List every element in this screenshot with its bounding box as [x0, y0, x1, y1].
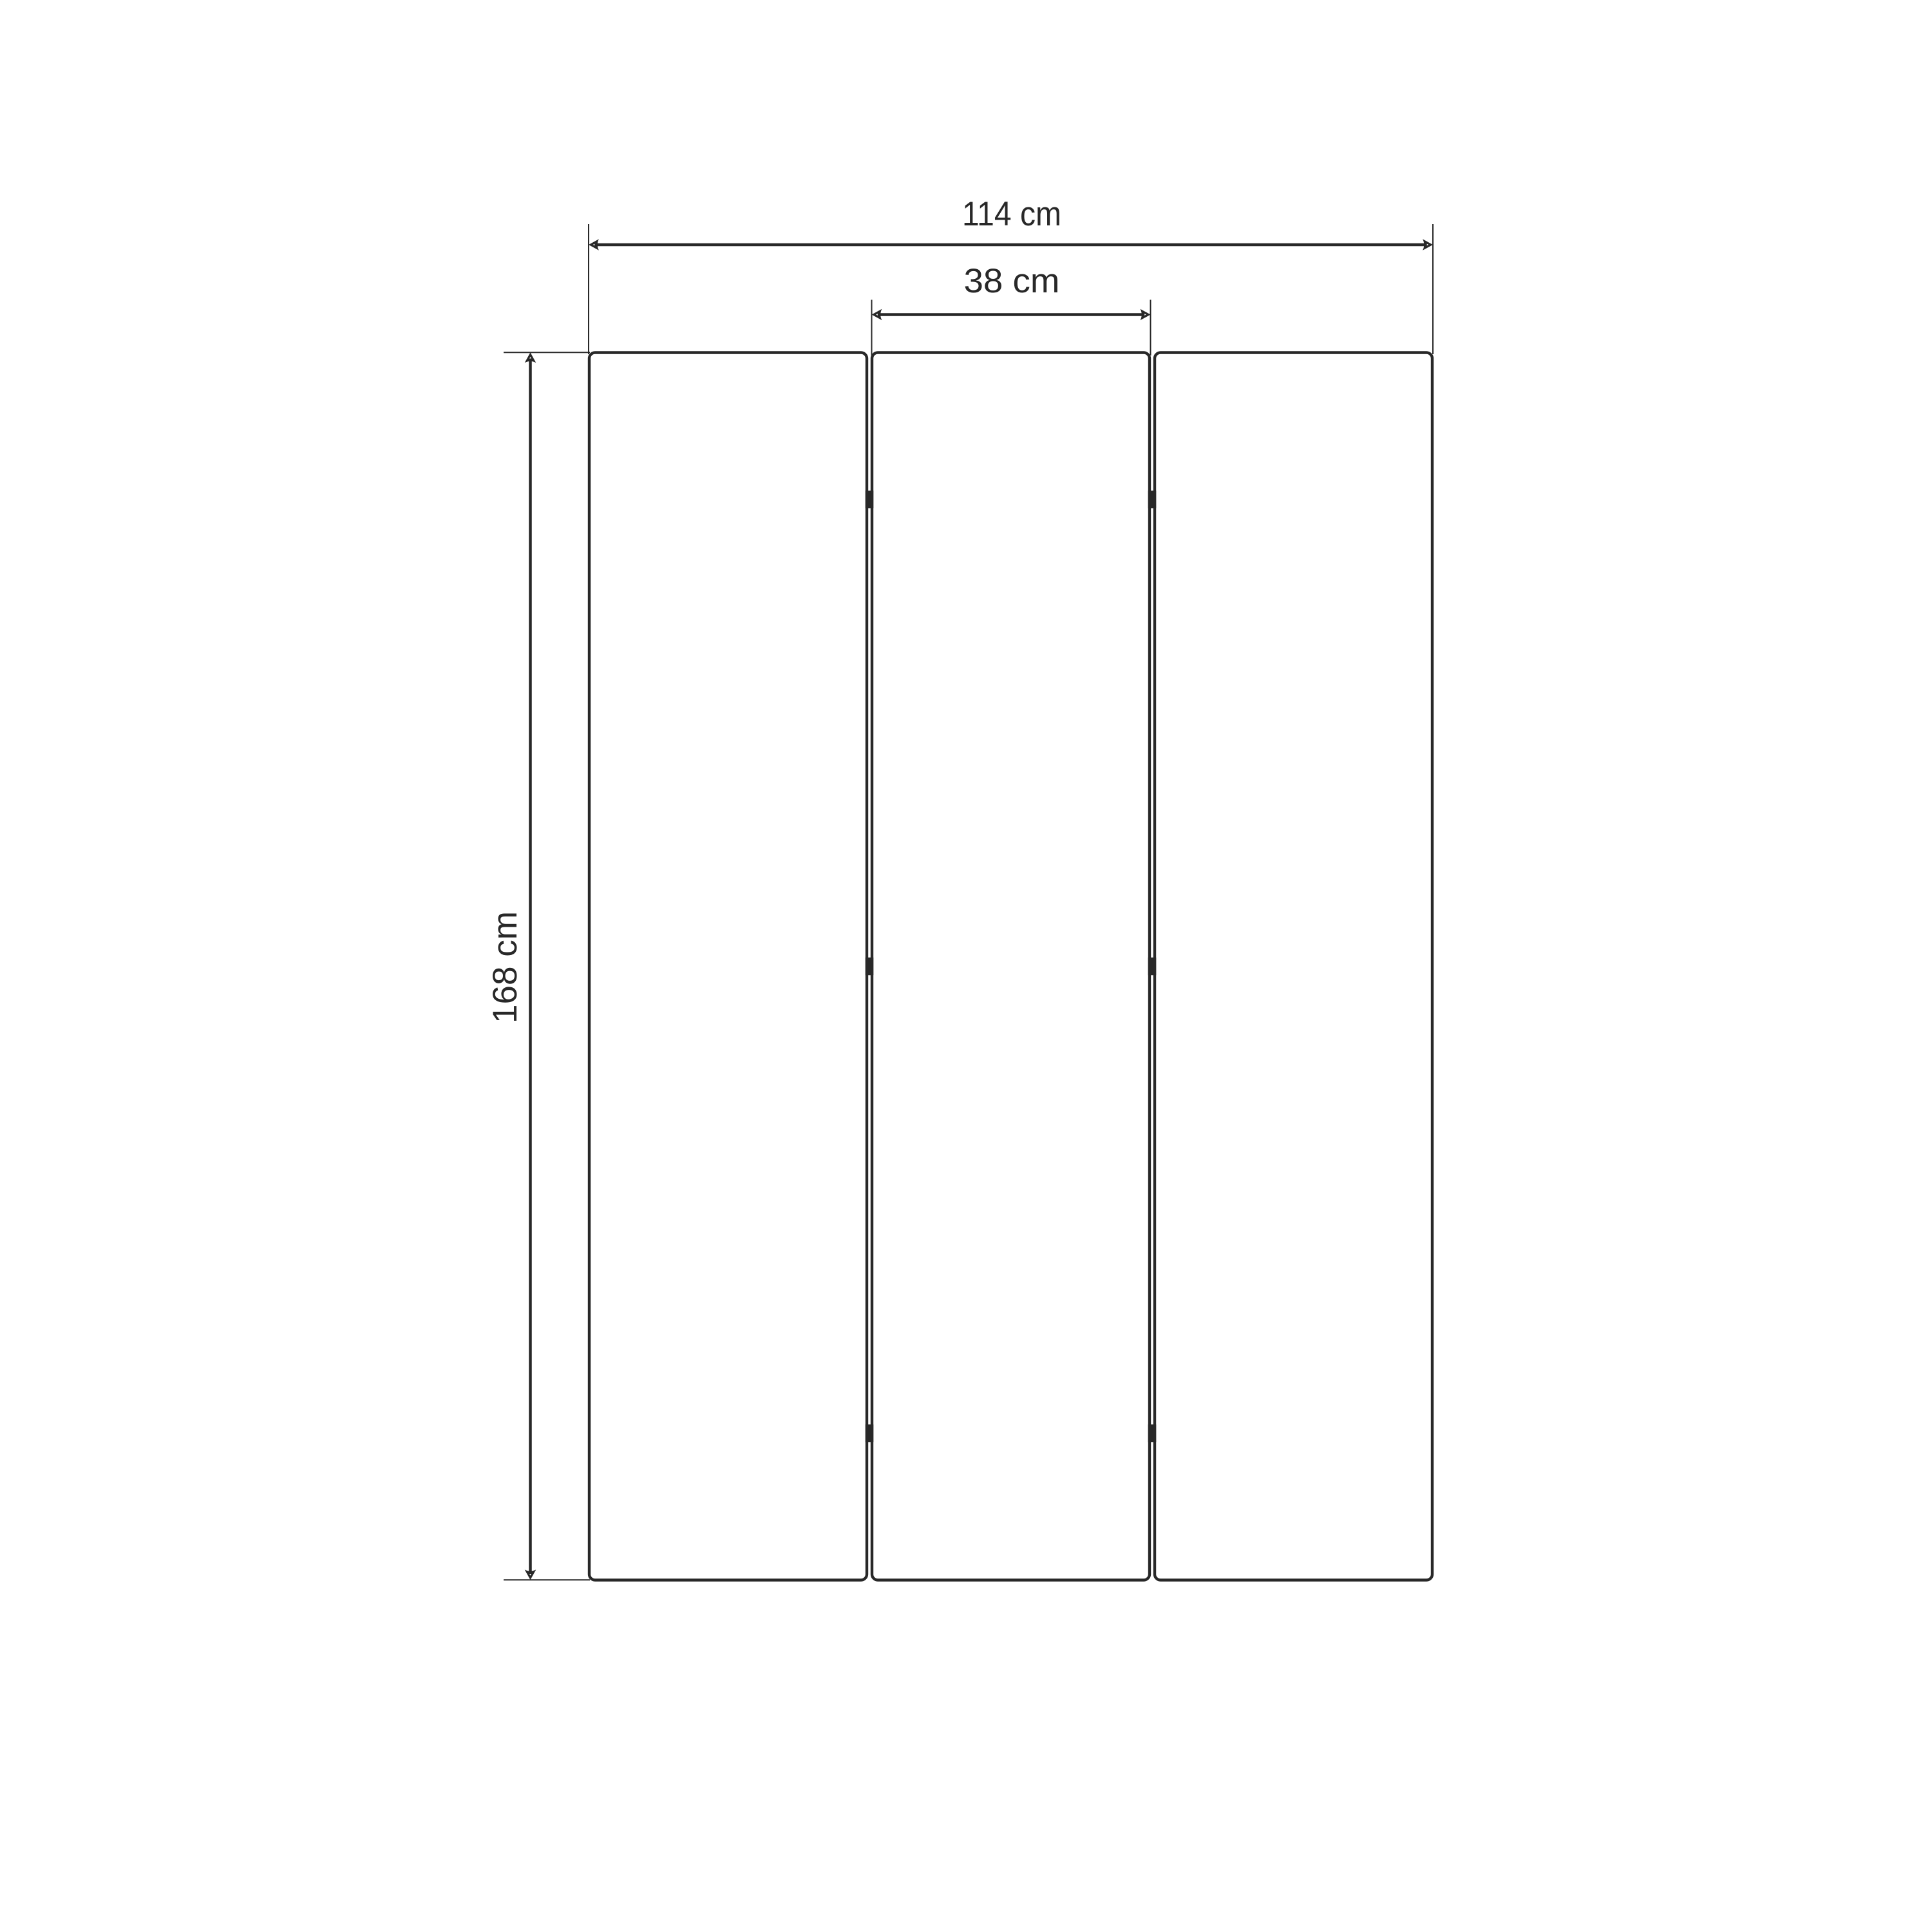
svg-text:114 cm: 114 cm — [962, 195, 1061, 233]
svg-text:38 cm: 38 cm — [964, 262, 1060, 300]
svg-text:168 cm: 168 cm — [486, 911, 524, 1023]
